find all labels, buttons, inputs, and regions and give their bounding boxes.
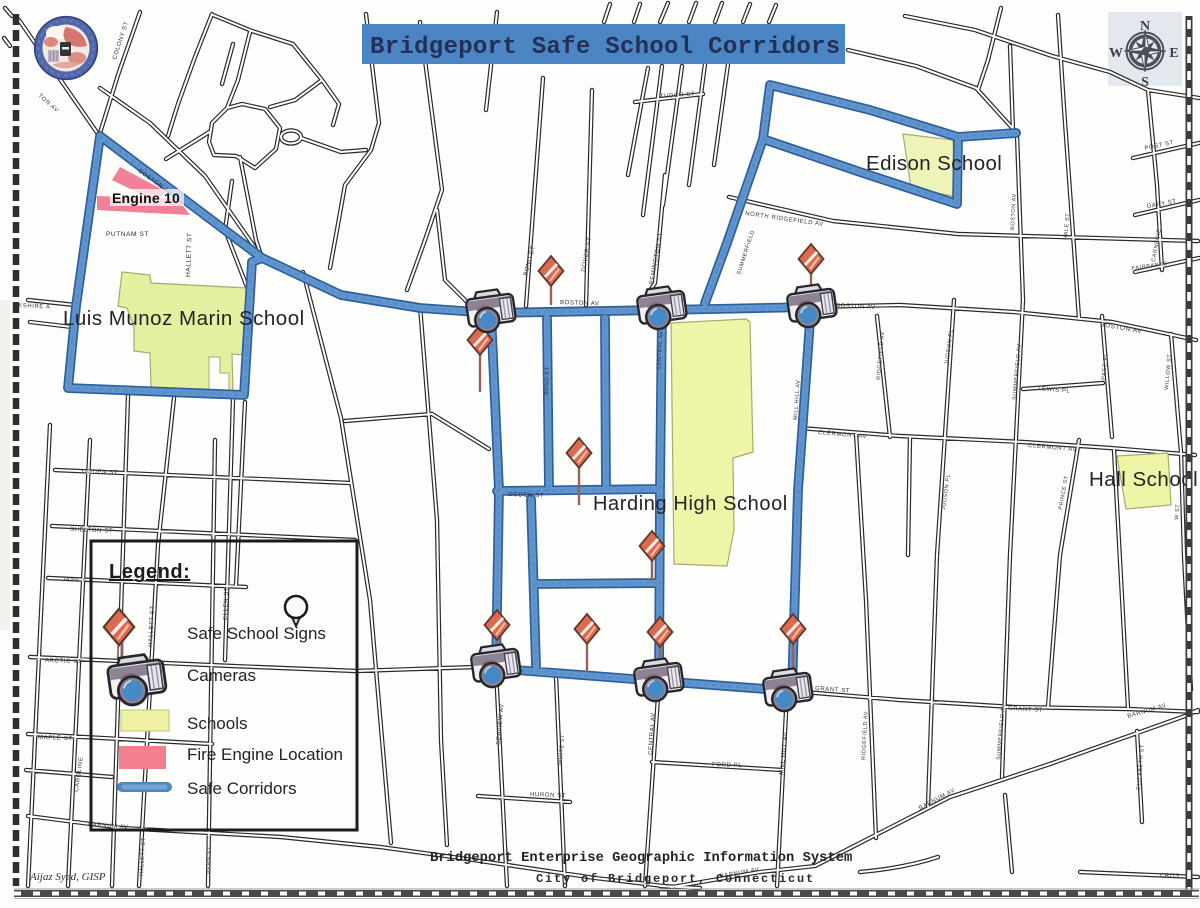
svg-text:Safe Corridors: Safe Corridors [187, 779, 297, 798]
svg-text:Hall School: Hall School [1089, 468, 1198, 491]
svg-text:BOND ST: BOND ST [544, 366, 551, 395]
svg-text:Engine 10: Engine 10 [112, 190, 180, 206]
svg-text:W: W [1109, 46, 1123, 61]
svg-text:Luis Munoz Marin School: Luis Munoz Marin School [63, 307, 305, 330]
svg-text:OGDEN ST: OGDEN ST [82, 469, 118, 476]
svg-text:Aijaz Syed, GISP: Aijaz Syed, GISP [29, 871, 106, 883]
svg-text:Safe School Signs: Safe School Signs [187, 624, 326, 643]
svg-text:MAPLE ST: MAPLE ST [38, 735, 73, 742]
svg-text:OGDEN ST: OGDEN ST [508, 492, 544, 499]
svg-text:HURON ST: HURON ST [530, 792, 566, 799]
svg-text:Bridgeport Enterprise Geograph: Bridgeport Enterprise Geographic Informa… [430, 850, 852, 866]
svg-text:Bridgeport Safe School Corrido: Bridgeport Safe School Corridors [370, 34, 840, 61]
svg-text:CROS: CROS [1160, 873, 1180, 880]
svg-text:JANE S: JANE S [62, 577, 87, 584]
svg-text:N: N [1140, 19, 1150, 34]
svg-text:Legend:: Legend: [109, 561, 190, 583]
svg-text:S: S [1141, 75, 1149, 90]
svg-text:BERN ST: BERN ST [206, 846, 213, 874]
svg-text:E: E [1169, 46, 1178, 61]
svg-text:Edison School: Edison School [866, 152, 1002, 175]
svg-text:Schools: Schools [187, 714, 247, 733]
svg-text:PUTNAM ST: PUTNAM ST [106, 231, 149, 238]
svg-text:Harding High School: Harding High School [593, 493, 788, 515]
svg-text:ELLEN ST: ELLEN ST [223, 587, 230, 620]
svg-text:City of Bridgeport, Connecticu: City of Bridgeport, Connecticut [536, 872, 815, 886]
svg-text:FORD PL: FORD PL [712, 762, 742, 769]
svg-text:Cameras: Cameras [187, 666, 256, 685]
svg-text:Fire Engine Location: Fire Engine Location [187, 745, 343, 764]
